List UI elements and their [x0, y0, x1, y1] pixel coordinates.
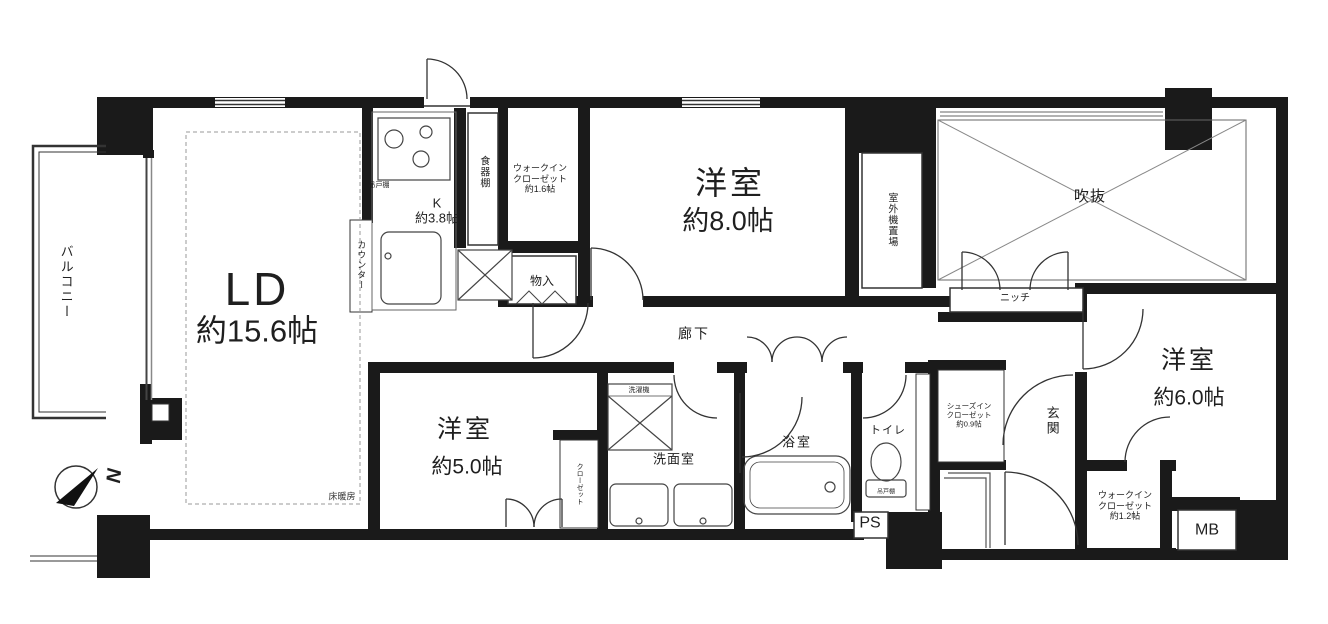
room-label-balcony: バルコニー [58, 245, 73, 320]
niche-label: ニッチ [1000, 293, 1030, 305]
compass-north-label: N [100, 467, 125, 483]
door-arc-hall-closet-3 [797, 337, 822, 362]
door-arc-washroom [674, 375, 717, 418]
room-label-western8: 洋室 [695, 165, 765, 203]
fridge-space-icon [458, 250, 512, 300]
double-sink-icon [610, 484, 732, 526]
door-arc-closet-right [534, 499, 562, 527]
bathtub-icon [740, 393, 850, 514]
wic-1-2-label: ウォークイン クローゼット 約1.2帖 [1098, 490, 1152, 522]
outdoor-unit-label: 室外機置場 [885, 193, 897, 248]
monoire-label: 物入 [530, 274, 554, 288]
hallway-label: 廊下 [678, 326, 710, 343]
atrium-label: 吹抜 [1074, 188, 1106, 206]
room-label-kitchen: K 約3.8帖 [415, 196, 459, 227]
door-arc-front-door [1005, 472, 1078, 545]
hanging-cupboard-kitchen-label: 吊戸棚 [369, 182, 390, 190]
entrance-label: 玄関 [1044, 406, 1059, 436]
cupboard-label: 食器棚 [477, 156, 489, 189]
room-label-western6: 洋室 [1161, 346, 1217, 376]
door-arc-entrance-inner [1003, 375, 1073, 445]
ps-label: PS [859, 515, 880, 534]
room-area-western8: 約8.0帖 [682, 206, 774, 238]
door-arc-wic12 [1125, 417, 1170, 462]
compass-icon [55, 466, 98, 508]
room-area-western6: 約6.0帖 [1153, 387, 1224, 412]
door-arc-hall-closet-2 [772, 337, 797, 362]
toilet-label: トイレ [870, 425, 906, 438]
washroom-label: 洗面室 [653, 451, 695, 466]
door-arc-closet-left [506, 499, 534, 527]
door-arc-kitchen-top [427, 59, 467, 99]
hanging-cupboard-toilet-label: 吊戸棚 [877, 489, 895, 496]
room-area-ld: 約15.6帖 [196, 314, 318, 351]
shoes-in-closet-label: シューズイン クローゼット 約0.9帖 [947, 403, 992, 430]
bathroom-label: 浴室 [782, 434, 812, 449]
floor-plan: バルコニー LD 約15.6帖 床暖房 カウンター 吊戸棚 K 約3.8帖 食器… [0, 0, 1328, 624]
door-arc-hall-closet-1 [747, 337, 772, 362]
door-arc-ld [533, 303, 588, 358]
room-label-ld: LD [225, 262, 290, 316]
closet-label: クローゼット [575, 463, 583, 505]
door-arc-western6 [1083, 309, 1143, 369]
counter-label: カウンター [356, 240, 367, 290]
mb-label: MB [1195, 522, 1219, 541]
door-arc-niche-right [1030, 252, 1068, 290]
door-arc-toilet [863, 375, 906, 418]
door-arc-hall-closet-4 [822, 337, 847, 362]
door-arc-western8 [591, 248, 643, 300]
floor-heating-label: 床暖房 [328, 492, 355, 503]
door-arc-niche-left [962, 252, 1000, 290]
room-area-western5: 約5.0帖 [431, 456, 502, 481]
floorplan-graphics [0, 0, 1328, 624]
washer-label: 洗濯機 [629, 387, 650, 395]
room-label-western5: 洋室 [437, 415, 493, 445]
entrance-step-lines [944, 473, 990, 548]
wic-1-6-label: ウォークイン クローゼット 約1.6帖 [513, 163, 567, 195]
